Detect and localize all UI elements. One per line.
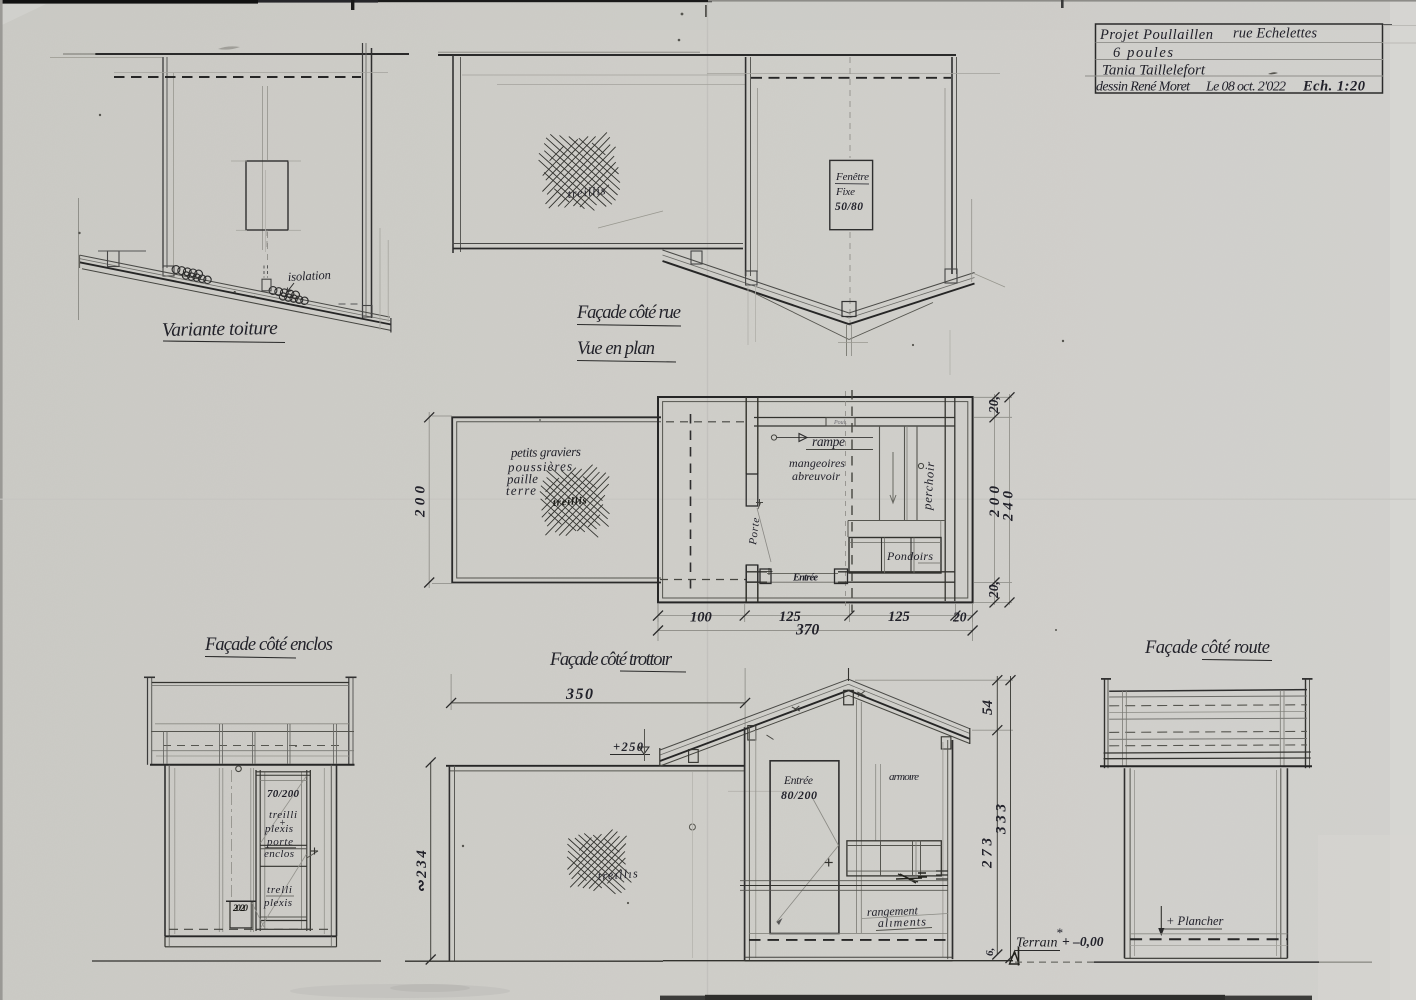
svg-text:Vue en plan: Vue en plan <box>577 339 655 359</box>
svg-text:rue Echelettes: rue Echelettes <box>1233 26 1317 42</box>
svg-text:terre: terre <box>506 482 538 498</box>
svg-text:Poul.: Poul. <box>833 420 847 426</box>
svg-text:treıllıs: treıllıs <box>597 866 639 883</box>
svg-text:Entrée: Entrée <box>792 573 818 584</box>
svg-text:Façade côté enclos: Façade côté enclos <box>204 635 333 655</box>
svg-text:Fenêtre: Fenêtre <box>835 171 869 183</box>
svg-text:54: 54 <box>980 700 996 716</box>
svg-text:Le 08 oct. 2'022: Le 08 oct. 2'022 <box>1205 80 1286 95</box>
svg-text:Projet Poullaillen: Projet Poullaillen <box>1099 27 1214 43</box>
svg-text:plexis: plexis <box>264 823 293 835</box>
svg-text:∾234: ∾234 <box>414 847 430 893</box>
svg-text:plexis: plexis <box>263 897 292 909</box>
svg-text:273: 273 <box>980 834 996 869</box>
svg-text:20,: 20, <box>986 396 1001 414</box>
svg-text:370: 370 <box>795 622 820 639</box>
svg-text:Façade côté trottoır: Façade côté trottoır <box>549 650 673 670</box>
svg-text:125: 125 <box>888 609 910 625</box>
svg-text:Pondoirs: Pondoirs <box>886 549 933 563</box>
svg-text:333: 333 <box>994 800 1010 835</box>
svg-text:isolation: isolation <box>287 268 331 284</box>
svg-text:treillis: treillis <box>552 495 587 509</box>
svg-text:50/80: 50/80 <box>835 201 863 213</box>
svg-text:abreuvoir: abreuvoir <box>792 469 840 483</box>
svg-text:350: 350 <box>565 686 595 703</box>
svg-text:240: 240 <box>1001 487 1017 522</box>
svg-text:*: * <box>1056 925 1063 940</box>
svg-text:trelli: trelli <box>267 884 293 896</box>
svg-text:Fixe: Fixe <box>835 186 855 198</box>
svg-text:20: 20 <box>952 610 967 625</box>
svg-text:+ Plancher: + Plancher <box>1166 914 1224 928</box>
svg-text:20,: 20, <box>986 581 1001 599</box>
svg-text:Variante toiture: Variante toiture <box>162 318 279 341</box>
svg-text:porte: porte <box>266 836 294 848</box>
svg-text:mangeoires: mangeoires <box>789 456 845 470</box>
svg-text:dessin René Moret: dessin René Moret <box>1096 80 1191 95</box>
svg-text:200: 200 <box>413 482 429 518</box>
svg-text:Tania Taillelefort: Tania Taillelefort <box>1102 63 1206 79</box>
svg-text:enclos: enclos <box>264 848 294 860</box>
svg-text:Façade côté rue: Façade côté rue <box>576 303 681 323</box>
svg-text:Ech. 1:20: Ech. 1:20 <box>1302 79 1366 95</box>
svg-text:100: 100 <box>690 610 712 626</box>
svg-text:6 poules: 6 poules <box>1113 45 1175 61</box>
svg-text:Terraın: Terraın <box>1016 936 1058 951</box>
svg-text:Entrée: Entrée <box>783 775 813 787</box>
svg-text:Façade côté route: Façade côté route <box>1144 638 1270 658</box>
svg-text:6,: 6, <box>984 948 996 956</box>
svg-text:70/200: 70/200 <box>267 788 300 800</box>
svg-text:alıments: alıments <box>878 914 928 930</box>
svg-text:armoıre: armoıre <box>889 771 919 783</box>
svg-text:rampe: rampe <box>812 434 845 449</box>
svg-text:80/200: 80/200 <box>781 788 818 802</box>
svg-text:20/20: 20/20 <box>232 904 248 914</box>
svg-text:+ –0,00: + –0,00 <box>1062 934 1104 949</box>
